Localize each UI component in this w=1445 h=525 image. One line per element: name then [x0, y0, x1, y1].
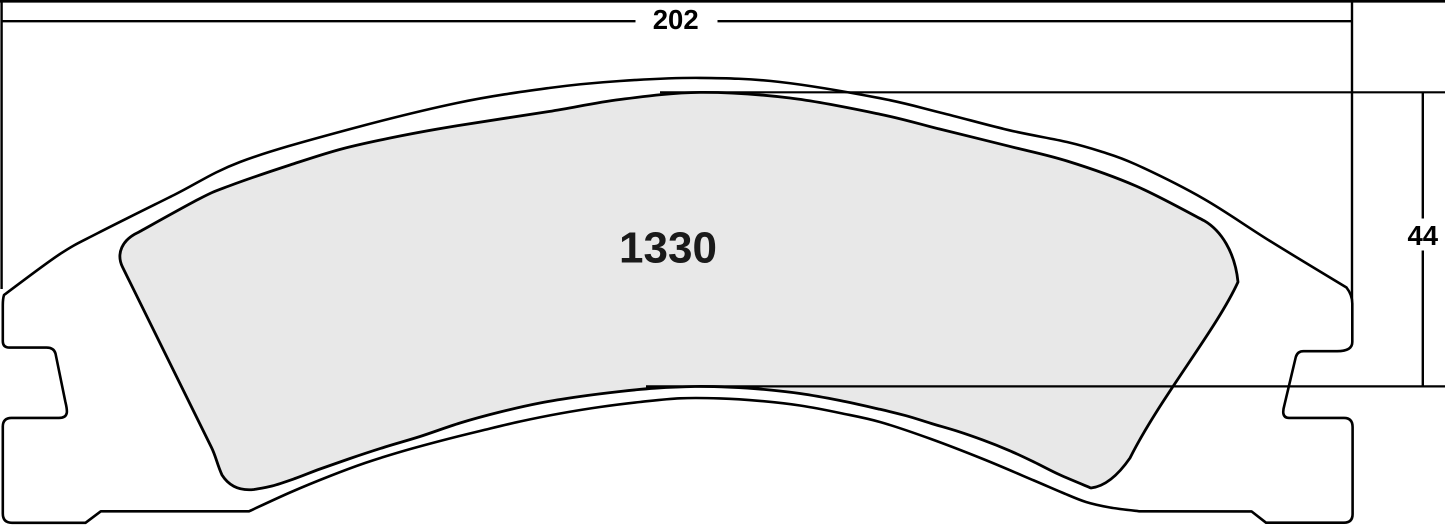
svg-text:44: 44 [1408, 220, 1439, 251]
svg-text:1330: 1330 [619, 223, 717, 272]
svg-text:202: 202 [653, 4, 699, 35]
